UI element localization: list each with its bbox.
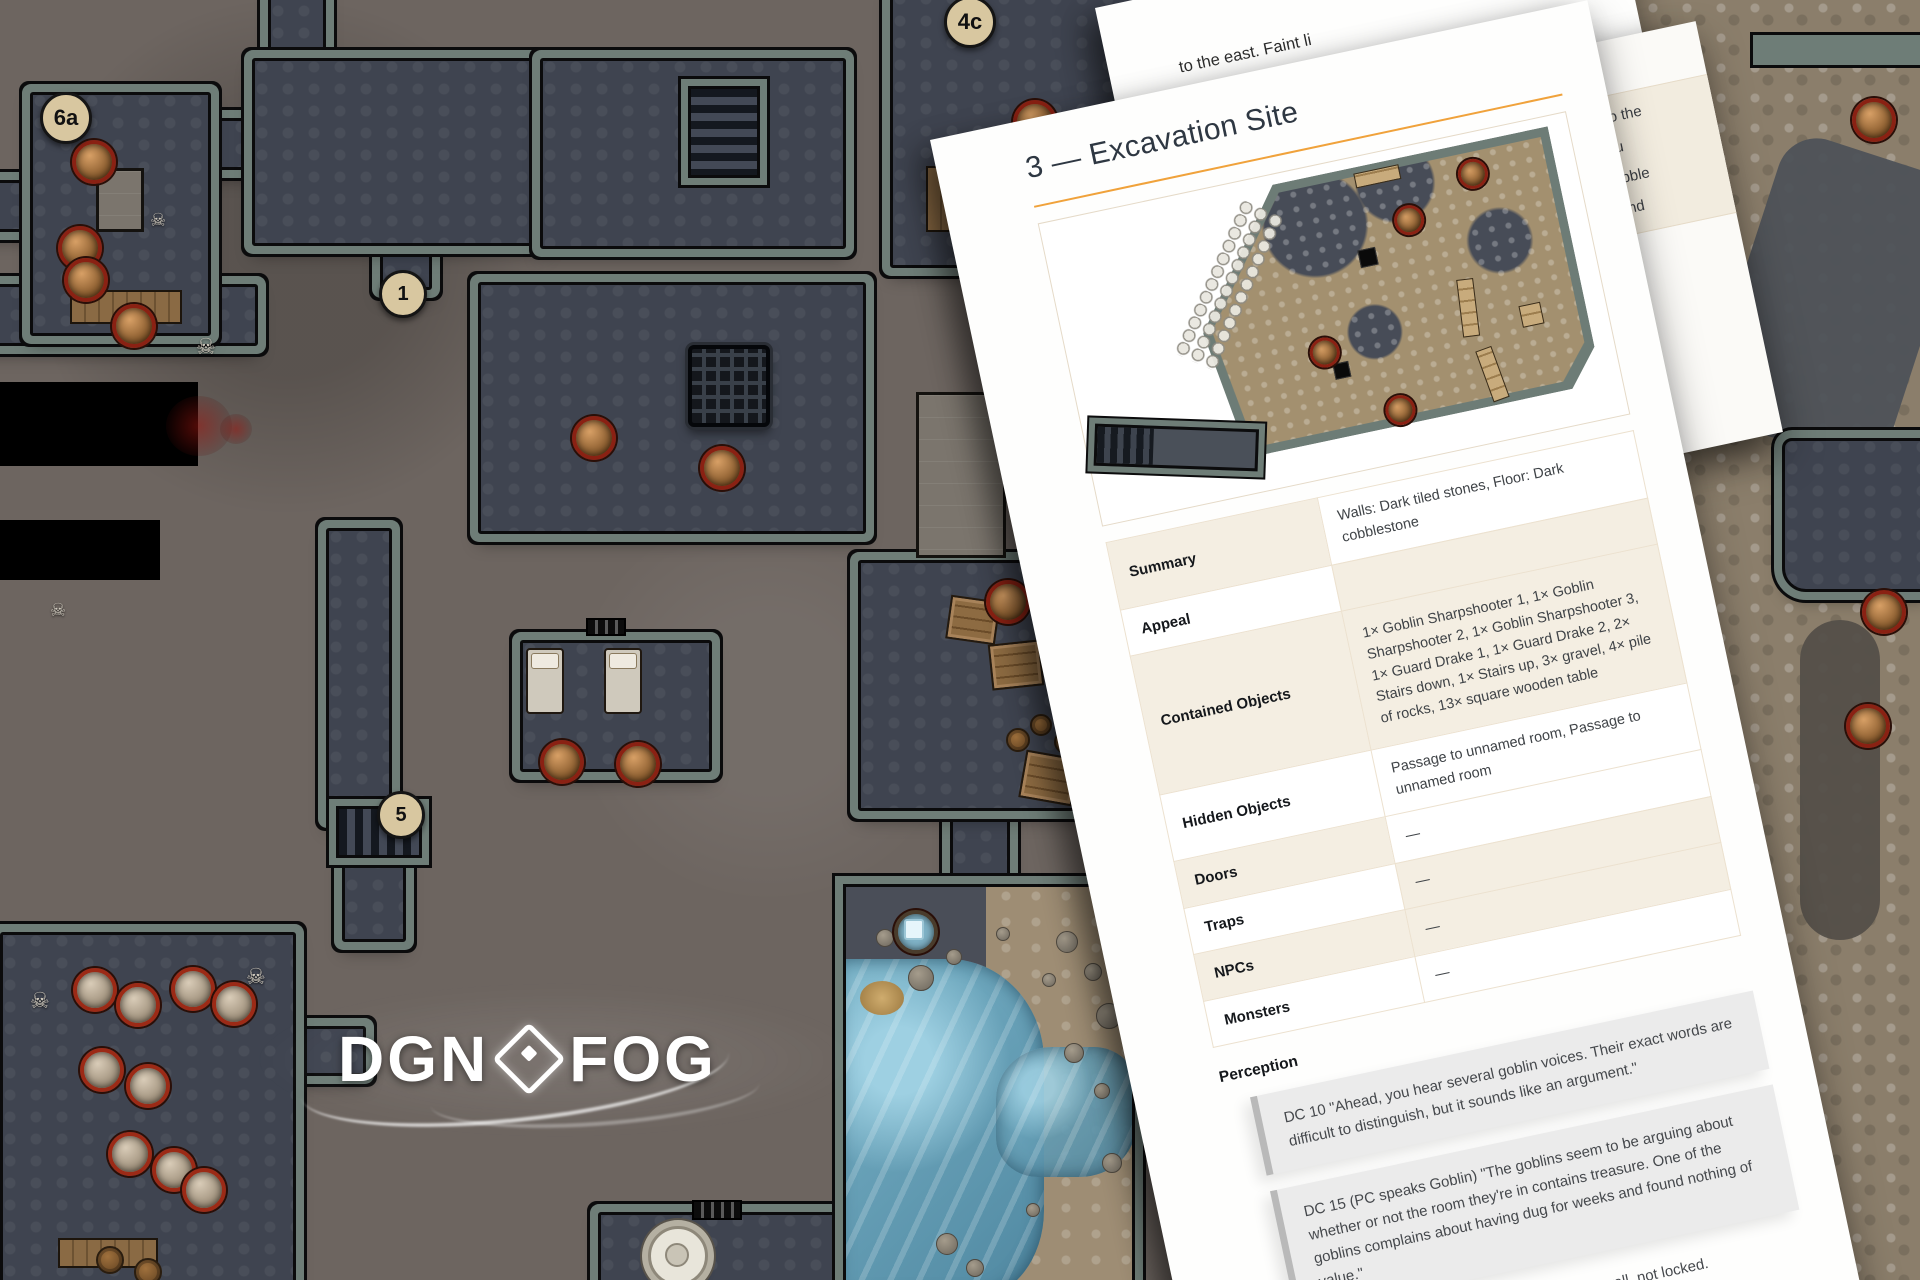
corridor: [268, 0, 326, 64]
room-water: [843, 884, 1135, 1280]
stone: [1084, 963, 1102, 981]
room-center: [478, 282, 866, 534]
pale-token[interactable]: [182, 1168, 226, 1212]
portcullis-grate: [688, 345, 770, 427]
pit: [1357, 247, 1378, 268]
panel-stairs: [1097, 427, 1154, 465]
bed: [526, 648, 564, 714]
pale-token[interactable]: [126, 1064, 170, 1108]
stone: [1042, 973, 1056, 987]
room-statue: [598, 1212, 866, 1280]
goblin-token[interactable]: [700, 446, 744, 490]
room-badge-5: 5: [377, 791, 425, 839]
void-area: [0, 520, 160, 580]
room-badge-6a: 6a: [40, 92, 92, 144]
wooden-table: [1518, 302, 1544, 328]
pale-token[interactable]: [212, 982, 256, 1026]
door: [586, 618, 626, 636]
crate: [988, 639, 1045, 690]
goblin-token[interactable]: [1846, 704, 1890, 748]
pit: [1332, 361, 1351, 380]
pale-token[interactable]: [108, 1132, 152, 1176]
goblin-token[interactable]: [1852, 98, 1896, 142]
pale-token[interactable]: [73, 968, 117, 1012]
goblin-token[interactable]: [572, 416, 616, 460]
stone-path: [1800, 620, 1880, 940]
pale-token[interactable]: [80, 1048, 124, 1092]
goblin-token[interactable]: [616, 742, 660, 786]
blood-stain: [220, 414, 252, 444]
bed: [604, 648, 642, 714]
goblin-token[interactable]: [112, 304, 156, 348]
stone: [1094, 1083, 1110, 1099]
wall-segment: [1750, 32, 1920, 68]
bones-icon: ☠: [50, 600, 66, 621]
room-info-table: SummaryWalls: Dark tiled stones, Floor: …: [1105, 430, 1741, 1048]
goblin-token[interactable]: [1862, 590, 1906, 634]
room-badge-1: 1: [379, 270, 427, 318]
room-right-corner: [1782, 438, 1920, 592]
corridor: [326, 528, 392, 820]
stone: [936, 1233, 958, 1255]
stairs-up: [688, 86, 760, 178]
stone: [996, 927, 1010, 941]
goblin-token[interactable]: [64, 258, 108, 302]
stone: [1026, 1203, 1040, 1217]
stone: [876, 929, 894, 947]
skeleton-icon: ☠: [196, 334, 216, 360]
panel-corridor: [1094, 424, 1259, 472]
skull-icon: ☠: [150, 210, 166, 231]
dungeon-map-screenshot: ☠ ☠ ☠ ☠ ☠ 6a14c5 DGN FOG to the east. Fa…: [0, 0, 1920, 1280]
stone: [946, 949, 962, 965]
goblin-token[interactable]: [72, 140, 116, 184]
stone: [1102, 1153, 1122, 1173]
statue-fountain: [648, 1226, 708, 1280]
double-door: [692, 1200, 742, 1220]
pale-token[interactable]: [171, 967, 215, 1011]
stone: [966, 1259, 984, 1277]
corridor: [342, 854, 406, 942]
barrel: [134, 1258, 162, 1280]
corridor: [950, 805, 1010, 893]
ice-token[interactable]: [894, 910, 938, 954]
perception-checks: DC 10 "Ahead, you hear several goblin vo…: [1225, 991, 1809, 1280]
sand-pile: [860, 981, 904, 1015]
barrel: [1006, 728, 1030, 752]
barrel: [1030, 714, 1052, 736]
goblin-token[interactable]: [986, 580, 1030, 624]
pale-token[interactable]: [116, 983, 160, 1027]
stone: [1056, 931, 1078, 953]
room-top-left: [252, 58, 546, 246]
stone: [1064, 1043, 1084, 1063]
skull-icon: ☠: [246, 964, 266, 990]
stone: [908, 965, 934, 991]
barrel: [96, 1246, 124, 1274]
goblin-token[interactable]: [540, 740, 584, 784]
bones-icon: ☠: [30, 988, 50, 1014]
